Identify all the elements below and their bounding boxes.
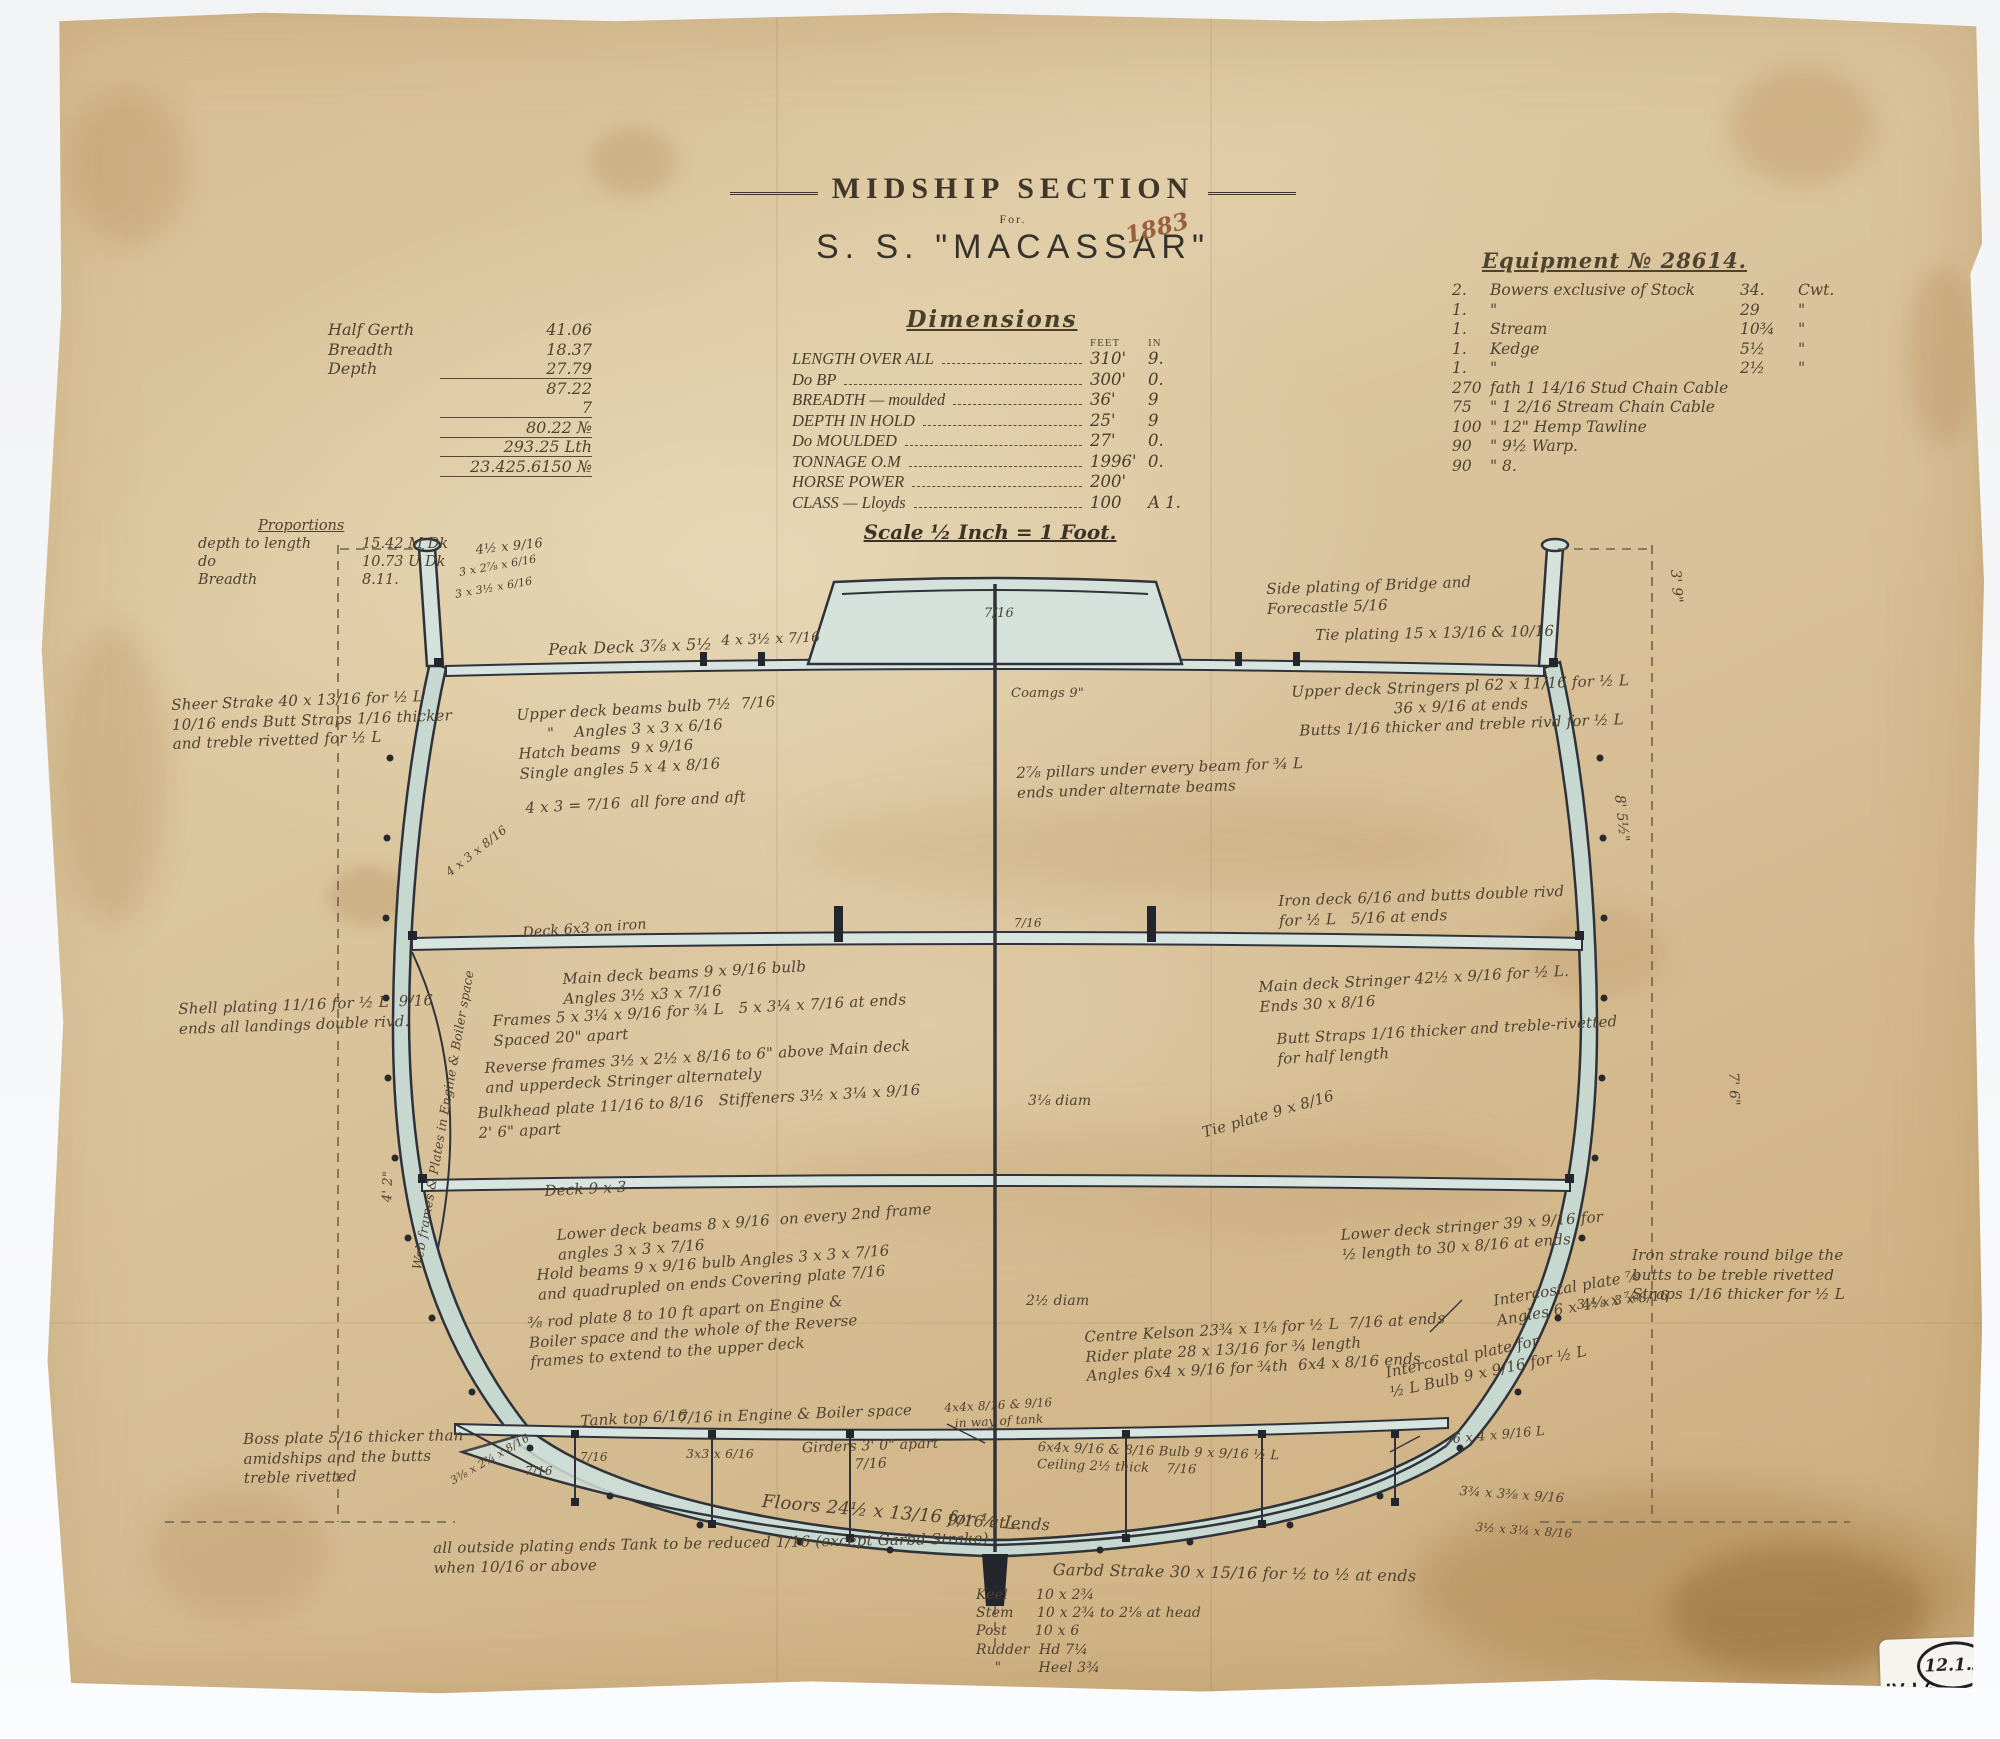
leader-line (844, 383, 1082, 385)
equipment-row: 1. Stream 10¾ " (1452, 320, 1844, 340)
calculation-row: 7 (328, 398, 598, 418)
equipment-unit: " (1798, 320, 1844, 340)
equipment-qty: 1. (1452, 340, 1490, 360)
equipment-unit: Cwt. (1798, 281, 1844, 301)
dimensions-table: Dimensions FEET IN LENGTH OVER ALL 310' … (792, 306, 1192, 513)
shelf-mark: IV L6 (1886, 1679, 1937, 1703)
calculation-row: Half Gerth 41.06 (328, 320, 598, 340)
proportions-title: Proportions (258, 518, 498, 534)
calculation-rows: Half Gerth 41.06 Breadth 18.37 Depth 27.… (328, 320, 598, 476)
equipment-unit (1798, 379, 1844, 399)
equipment-unit: " (1798, 340, 1844, 360)
equipment-item: Stream (1490, 320, 1740, 340)
drawing-annotation: Tie plating 15 x 13/16 & 10/16 (1315, 622, 1554, 646)
shelf-mark-rest: L6 (1912, 1679, 1937, 1701)
equipment-item: " 8. (1490, 457, 1740, 477)
equipment-title: Equipment № 28614. (1482, 248, 1844, 273)
equipment-weight (1740, 418, 1798, 438)
calculation-row: Depth 27.79 (328, 359, 598, 379)
proportion-row: depth to length 15.42 M Dk (198, 536, 498, 554)
drawing-annotation: Iron strake round bilge the butts to be … (1632, 1246, 1882, 1305)
calculation-row: 293.25 Lth (328, 437, 598, 457)
equipment-qty: 1. (1452, 320, 1490, 340)
equipment-unit (1798, 418, 1844, 438)
calc-value: 41.06 (440, 320, 592, 340)
equipment-row: 270 fath 1 14/16 Stud Chain Cable (1452, 379, 1844, 399)
equipment-weight: 29 (1740, 301, 1798, 321)
equipment-row: 1. " 2½ " (1452, 359, 1844, 379)
drawing-annotation: Keel 10 x 2¾ Stem 10 x 2¾ to 2⅛ at head … (976, 1586, 1306, 1677)
equipment-row: 2. Bowers exclusive of Stock 34. Cwt. (1452, 281, 1844, 301)
drawing-annotation: Sheer Strake 40 x 13/16 for ½ L 10/16 en… (171, 685, 483, 754)
equipment-weight: 5½ (1740, 340, 1798, 360)
calc-value: 80.22 № (440, 418, 592, 438)
dimension-inches: 0. (1148, 370, 1192, 389)
dimension-feet: 36' (1090, 390, 1148, 409)
dimension-inches: 9 (1148, 411, 1192, 430)
proportions-block: Proportions depth to length 15.42 M Dk d… (198, 518, 498, 590)
drawing-annotation: 7/16 (525, 1464, 553, 1480)
calc-label (328, 418, 440, 438)
leader-line (909, 465, 1082, 467)
dimension-row: HORSE POWER 200' (792, 472, 1192, 493)
calc-value: 87.22 (440, 379, 592, 399)
dimension-label: BREADTH — moulded (792, 390, 945, 410)
calc-value: 293.25 Lth (440, 437, 592, 457)
drawing-annotation: 3⅛ diam (1028, 1092, 1091, 1110)
drawing-annotation: 7/16 (984, 606, 1014, 623)
drawing-annotation: 7' 6" (1724, 1072, 1743, 1106)
equipment-qty: 2. (1452, 281, 1490, 301)
dimension-row: CLASS — Lloyds 100 A 1. (792, 493, 1192, 514)
calc-label (328, 457, 440, 477)
dimension-row: Do BP 300' 0. (792, 370, 1192, 391)
calculation-block: Half Gerth 41.06 Breadth 18.37 Depth 27.… (328, 320, 598, 476)
calc-label: Depth (328, 359, 440, 379)
proportion-label: depth to length (198, 536, 348, 554)
calculation-row: 23.425.6150 № (328, 457, 598, 477)
dimensions-rows: LENGTH OVER ALL 310' 9. Do BP 300' 0. BR… (792, 349, 1192, 513)
dimension-inches: A 1. (1148, 493, 1192, 512)
dimension-inches: 9. (1148, 349, 1192, 368)
equipment-item: Bowers exclusive of Stock (1490, 281, 1740, 301)
equipment-item: " (1490, 359, 1740, 379)
equipment-row: 1. " 29 " (1452, 301, 1844, 321)
drawing-annotation: 4 x 3½ x 7/16 (721, 629, 821, 651)
equipment-item: Kedge (1490, 340, 1740, 360)
equipment-row: 90 " 8. (1452, 457, 1844, 477)
equipment-weight (1740, 457, 1798, 477)
drawing-annotation: 3x3 x 6/16 (686, 1446, 754, 1462)
calc-value: 23.425.6150 № (440, 457, 592, 477)
equipment-row: 75 " 1 2/16 Stream Chain Cable (1452, 398, 1844, 418)
dimension-feet: 1996' (1090, 452, 1148, 471)
equipment-item: fath 1 14/16 Stud Chain Cable (1490, 379, 1740, 399)
equipment-qty: 100 (1452, 418, 1490, 438)
dimension-label: HORSE POWER (792, 472, 904, 492)
dimension-feet: 300' (1090, 370, 1148, 389)
dimension-row: LENGTH OVER ALL 310' 9. (792, 349, 1192, 370)
equipment-weight (1740, 437, 1798, 457)
dimension-label: Do BP (792, 370, 836, 390)
drawing-title: MIDSHIP SECTION (830, 172, 1196, 206)
equipment-unit: " (1798, 301, 1844, 321)
calc-label (328, 379, 440, 399)
dimension-feet: 310' (1090, 349, 1148, 368)
sticker-small-number: 2 (1976, 1675, 1985, 1690)
leader-line (923, 424, 1082, 426)
dimensions-header: FEET IN (792, 337, 1192, 349)
proportion-label: Breadth (198, 572, 348, 590)
drawing-annotation: 4' 2" (380, 1171, 398, 1203)
dimension-label: TONNAGE O.M (792, 452, 901, 472)
equipment-row: 100 " 12" Hemp Tawline (1452, 418, 1844, 438)
dimension-feet: 25' (1090, 411, 1148, 430)
equipment-unit (1798, 457, 1844, 477)
dimension-feet: 100 (1090, 493, 1148, 512)
dimension-label: CLASS — Lloyds (792, 493, 906, 513)
drawing-annotation: 3' 9" (1666, 569, 1686, 604)
equipment-unit: " (1798, 359, 1844, 379)
calculation-row: 87.22 (328, 379, 598, 399)
calculation-row: 80.22 № (328, 418, 598, 438)
dimension-feet: 27' (1090, 431, 1148, 450)
equipment-row: 1. Kedge 5½ " (1452, 340, 1844, 360)
calc-value: 18.37 (440, 340, 592, 360)
equipment-weight (1740, 398, 1798, 418)
dimension-label: DEPTH IN HOLD (792, 411, 915, 431)
drawing-annotation: 2½ diam (1026, 1292, 1089, 1310)
equipment-qty: 75 (1452, 398, 1490, 418)
calc-label (328, 437, 440, 457)
equipment-item: " (1490, 301, 1740, 321)
proportion-label: do (198, 554, 348, 572)
equipment-qty: 90 (1452, 437, 1490, 457)
title-for-label: For. (966, 212, 1060, 227)
calc-value: 7 (440, 398, 592, 418)
feet-column-label: FEET (1090, 337, 1148, 349)
drawing-annotation: 7/16 (580, 1450, 608, 1466)
shelf-mark-roman: IV (1886, 1680, 1907, 1702)
drawing-annotation: Coamgs 9" (1011, 686, 1084, 703)
in-column-label: IN (1148, 337, 1192, 349)
equipment-item: " 1 2/16 Stream Chain Cable (1490, 398, 1740, 418)
calculation-row: Breadth 18.37 (328, 340, 598, 360)
leader-line (905, 444, 1082, 446)
equipment-unit (1798, 398, 1844, 418)
equipment-weight: 2½ (1740, 359, 1798, 379)
dimension-row: Do MOULDED 27' 0. (792, 431, 1192, 452)
equipment-qty: 1. (1452, 301, 1490, 321)
dimension-row: TONNAGE O.M 1996' 0. (792, 452, 1192, 473)
equipment-unit (1798, 437, 1844, 457)
leader-line (914, 506, 1082, 508)
equipment-weight: 10¾ (1740, 320, 1798, 340)
equipment-row: 90 " 9½ Warp. (1452, 437, 1844, 457)
equipment-weight (1740, 379, 1798, 399)
dimension-feet: 200' (1090, 472, 1148, 491)
drawing-annotation: 7/16 (1014, 916, 1042, 932)
drawing-annotation: Girders 3' 0" apart 7/16 (785, 1434, 956, 1476)
proportions-rows: depth to length 15.42 M Dk do 10.73 U Dk… (198, 536, 498, 590)
spacer (792, 337, 1090, 349)
dimension-inches: 0. (1148, 452, 1192, 471)
dimension-inches: 0. (1148, 431, 1192, 450)
archive-sticker: 12.1.2 IV L6 2 (1879, 1636, 1997, 1694)
equipment-item: " 12" Hemp Tawline (1490, 418, 1740, 438)
dimension-label: Do MOULDED (792, 431, 897, 451)
leader-line (942, 362, 1082, 364)
leader-line (912, 485, 1082, 487)
proportion-row: do 10.73 U Dk (198, 554, 498, 572)
equipment-weight: 34. (1740, 281, 1798, 301)
calc-label: Breadth (328, 340, 440, 360)
scale-note: Scale ½ Inch = 1 Foot. (760, 520, 1220, 544)
equipment-rows: 2. Bowers exclusive of Stock 34. Cwt. 1.… (1452, 281, 1844, 476)
calc-label (328, 398, 440, 418)
equipment-qty: 270 (1452, 379, 1490, 399)
dimension-row: DEPTH IN HOLD 25' 9 (792, 411, 1192, 432)
dimension-row: BREADTH — moulded 36' 9 (792, 390, 1192, 411)
dimensions-title: Dimensions (792, 306, 1192, 333)
equipment-list: Equipment № 28614. 2. Bowers exclusive o… (1452, 248, 1844, 476)
equipment-qty: 90 (1452, 457, 1490, 477)
calc-value: 27.79 (440, 359, 592, 379)
dimension-label: LENGTH OVER ALL (792, 349, 934, 369)
equipment-qty: 1. (1452, 359, 1490, 379)
drawing-sheet: MIDSHIP SECTION For. S. S. "MACASSAR" Sc… (28, 6, 1986, 1700)
calc-label: Half Gerth (328, 320, 440, 340)
equipment-item: " 9½ Warp. (1490, 437, 1740, 457)
dimension-inches: 9 (1148, 390, 1192, 409)
leader-line (953, 403, 1082, 405)
